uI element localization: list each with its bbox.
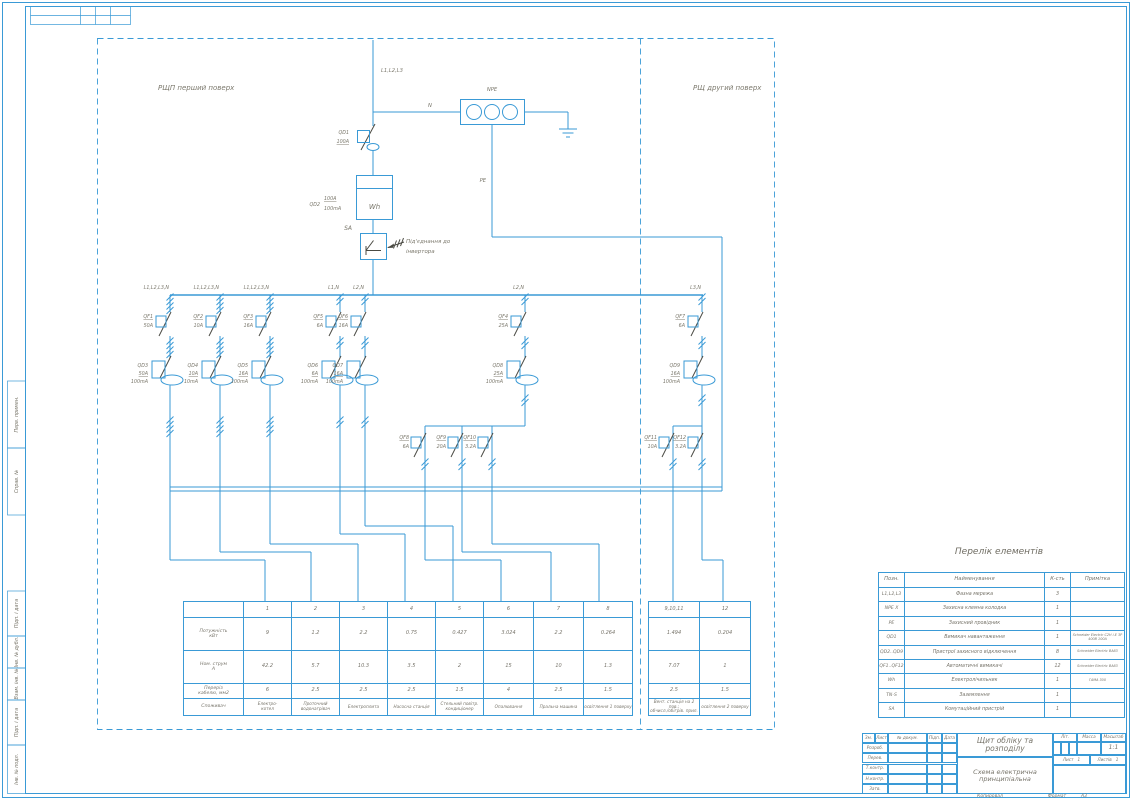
breaker-rating: 3.2A <box>465 444 476 450</box>
element-pos: L1,L2,L3 <box>879 588 905 602</box>
element-name: Електролічильник <box>905 674 1045 688</box>
rcd-name: QD8 <box>492 363 503 369</box>
breaker-name: QF7 <box>675 314 685 320</box>
document-title: Щит обліку та розподілу <box>957 733 1053 757</box>
margin-stamp-label: Справ. № <box>14 470 20 493</box>
load-row-label: Потужність кВт <box>184 618 244 651</box>
load-num: 2 <box>292 602 340 618</box>
load-power: 9 <box>244 618 292 651</box>
element-name: Заземлення <box>905 688 1045 702</box>
rcd-name: QD6 <box>307 363 318 369</box>
element-qty: 1 <box>1045 674 1071 688</box>
rcd-leakage: 100mA <box>486 379 503 385</box>
sign-cell <box>927 764 942 774</box>
margin-stamp-label: Взам. інв. № <box>14 669 20 700</box>
sign-header: № докум. <box>888 733 927 743</box>
rcd-rating: 25A <box>494 371 503 377</box>
rcd-rating: 6A <box>312 371 318 377</box>
sign-header: Дата <box>942 733 957 743</box>
format-label: Формат <box>1040 794 1074 799</box>
load-consumer: Проточний водонагрівач <box>292 699 340 716</box>
sign-row-label: Перев. <box>862 753 888 763</box>
load-num: 3 <box>340 602 388 618</box>
load-num: 4 <box>388 602 436 618</box>
load-row-label: Ном. струм А <box>184 651 244 684</box>
title-block: Щит обліку та розподілу Схема електрична… <box>862 733 1126 794</box>
load-num: 1 <box>244 602 292 618</box>
branch-feed-label: L1,L2,L3,N <box>194 285 220 291</box>
breaker-rating: 16A <box>339 323 348 329</box>
element-note: Schneider Electric BA63 <box>1071 645 1125 659</box>
first-floor-panel-label: РЩП перший поверх <box>158 84 235 92</box>
terminal-icon <box>503 105 518 120</box>
rcd-rating: 16A <box>671 371 680 377</box>
breaker-rating: 3.2A <box>675 444 686 450</box>
load-row-label: Переріз кабелю, мм2 <box>184 684 244 699</box>
sign-header: Зм. <box>862 733 875 743</box>
element-name: Комутаційний пристрій <box>905 703 1045 717</box>
element-qty: 12 <box>1045 659 1071 673</box>
mass-header: Масса <box>1077 733 1101 742</box>
load-num: 9,10,11 <box>649 602 700 618</box>
load-current: 15 <box>484 651 534 684</box>
npe-label: NPE <box>487 87 498 93</box>
load-num: 5 <box>436 602 484 618</box>
sign-cell <box>942 774 957 784</box>
rcd-body <box>252 361 265 378</box>
load-cable: 4 <box>484 684 534 699</box>
breaker-name: QF11 <box>644 435 657 441</box>
element-pos: Wh <box>879 674 905 688</box>
load-current: 42.2 <box>244 651 292 684</box>
load-current: 3.5 <box>388 651 436 684</box>
terminal-icon <box>485 105 500 120</box>
lit-cell <box>1053 742 1061 755</box>
meter-device-label: QD2 <box>309 202 320 208</box>
breaker-rating: 20A <box>437 444 446 450</box>
rcd-rating: 16A <box>239 371 248 377</box>
rcd-toroid <box>693 375 715 385</box>
branch-feed-label: L1,L2,L3,N <box>244 285 270 291</box>
load-consumer: освітлення 2 поверху <box>700 699 751 716</box>
rcd-body <box>347 361 360 378</box>
element-note <box>1071 602 1125 616</box>
sign-cell <box>927 753 942 763</box>
rcd-body <box>507 361 520 378</box>
load-current: 5.7 <box>292 651 340 684</box>
meter-symbol: Wh <box>369 203 380 211</box>
element-pos: QD2..QD9 <box>879 645 905 659</box>
load-num: 12 <box>700 602 751 618</box>
element-note <box>1071 616 1125 630</box>
pe-label: PE <box>480 178 487 184</box>
incoming-feeder: L1,L2,L3 N NPE PE <box>309 40 722 491</box>
element-name: Пристрої захисного відключення <box>905 645 1045 659</box>
rcd-toroid <box>161 375 183 385</box>
sa-switch-glyph <box>366 241 381 256</box>
elements-header: К-сть <box>1045 573 1071 588</box>
element-name: Захисний провідник <box>905 616 1045 630</box>
rcd-leakage: 100mA <box>663 379 680 385</box>
element-qty: 1 <box>1045 631 1071 645</box>
energy-meter <box>357 176 393 220</box>
element-note <box>1071 688 1125 702</box>
branch-feed-label: L2,N <box>513 285 524 291</box>
element-qty: 1 <box>1045 703 1071 717</box>
circuit-branch: L1,NQF56AQD66A100mA <box>301 285 405 601</box>
mass-cell <box>1077 742 1101 755</box>
rcd-toroid <box>356 375 378 385</box>
lit-header: Літ. <box>1053 733 1077 742</box>
sign-row-label: Т.контр. <box>862 764 888 774</box>
element-qty: 1 <box>1045 688 1071 702</box>
circuit-branch: L1,L2,L3,NQF150AQD350A100mA <box>131 285 265 601</box>
element-pos: PE <box>879 616 905 630</box>
circuit-branch: L2,NQF616AQD716A100mA <box>326 285 453 601</box>
rcd-rating: 50A <box>139 371 148 377</box>
load-cable: 1.5 <box>700 684 751 699</box>
load-power: 0.427 <box>436 618 484 651</box>
load-row-label <box>184 602 244 618</box>
neutral-label: N <box>428 103 432 109</box>
load-num: 6 <box>484 602 534 618</box>
load-power: 0.75 <box>388 618 436 651</box>
breaker-name: QF12 <box>673 435 686 441</box>
sheets-cell: Листів 1 <box>1090 755 1126 765</box>
margin-stamp-label: Інв. № подл. <box>14 754 20 785</box>
branch-feed-label: L3,N <box>690 285 701 291</box>
rcd-leakage: 100mA <box>326 379 343 385</box>
switch-release <box>367 144 379 151</box>
breaker-name: QF1 <box>143 314 153 320</box>
load-row-label: Споживач <box>184 699 244 716</box>
sign-cell <box>888 753 927 763</box>
copied-label: Копировал <box>955 794 1025 799</box>
load-consumer: Вент. станція на 2 пов.; обчисл./обігрів… <box>649 699 700 716</box>
load-consumer: Опалювання <box>484 699 534 716</box>
load-cable: 6 <box>244 684 292 699</box>
sheet-cell: Лист 1 <box>1053 755 1090 765</box>
elements-table-title: Перелік елементів <box>878 547 1120 557</box>
switch-contact <box>358 131 370 143</box>
sheet-label: Лист <box>1063 758 1074 762</box>
qd1-label: QD1 <box>338 130 349 136</box>
element-note: Schneider Electric C2H i-E 3P 400B 100A <box>1071 631 1125 645</box>
element-pos: SA <box>879 703 905 717</box>
breaker-rating: 10A <box>194 323 203 329</box>
inverter-note: інвертора <box>406 249 435 255</box>
sign-cell <box>888 764 927 774</box>
rcd-name: QD4 <box>187 363 198 369</box>
rcd-toroid <box>261 375 283 385</box>
load-cable: 2.5 <box>649 684 700 699</box>
branch-feed-label: L2,N <box>353 285 364 291</box>
load-power: 2.2 <box>534 618 584 651</box>
rcd-name: QD9 <box>669 363 680 369</box>
margin-stamp-label: Перв. примен. <box>14 396 20 432</box>
rcd-body <box>684 361 697 378</box>
sign-cell <box>888 743 927 753</box>
rcd-leakage: 100mA <box>231 379 248 385</box>
load-cable: 2.5 <box>292 684 340 699</box>
load-current: 10.3 <box>340 651 388 684</box>
load-num: 8 <box>584 602 633 618</box>
lit-cell <box>1061 742 1069 755</box>
breaker-rating: 16A <box>244 323 253 329</box>
sign-cell <box>927 743 942 753</box>
sign-cell <box>927 774 942 784</box>
rcd-body <box>202 361 215 378</box>
element-qty: 1 <box>1045 616 1071 630</box>
branch-feed-label: L1,N <box>328 285 339 291</box>
sheet-value: 1 <box>1077 758 1080 762</box>
circuit-branch: L3,NQF76AQD916A100mAQF1110AQF123.2A <box>644 285 723 601</box>
element-note: Schneider Electric BA63 <box>1071 659 1125 673</box>
load-power: 0.264 <box>584 618 633 651</box>
sign-cell <box>942 753 957 763</box>
load-num: 7 <box>534 602 584 618</box>
load-consumer: Електроплита <box>340 699 388 716</box>
rcd-toroid <box>211 375 233 385</box>
rcd-rating: 16A <box>334 371 343 377</box>
load-power: 2.2 <box>340 618 388 651</box>
element-qty: 8 <box>1045 645 1071 659</box>
phase-label: L1,L2,L3 <box>381 68 403 74</box>
element-note <box>1071 588 1125 602</box>
load-power: 1.494 <box>649 618 700 651</box>
sign-header: Лист <box>875 733 888 743</box>
meter-leakage: 100mA <box>324 206 341 212</box>
rcd-name: QD5 <box>237 363 248 369</box>
scale-value: 1:1 <box>1101 742 1126 755</box>
second-floor-panel-label: РЩ другий поверх <box>693 84 762 92</box>
margin-stamp-label: Підп. і дата <box>14 599 20 628</box>
switch-blade <box>361 124 375 150</box>
circuit-branch: L1,L2,L3,NQF316AQD516A100mA <box>231 285 358 601</box>
load-current: 10 <box>534 651 584 684</box>
load-power: 1.2 <box>292 618 340 651</box>
elements-header: Позн. <box>879 573 905 588</box>
load-consumer: Електро- котел <box>244 699 292 716</box>
meter-rating: 100A <box>324 196 336 202</box>
sign-header: Підп. <box>927 733 942 743</box>
circuit-branch: L2,NQF425AQD825A100mAQF86AQF920AQF103.2A <box>399 285 599 601</box>
breaker-name: QF8 <box>399 435 409 441</box>
terminal-icon <box>467 105 482 120</box>
rcd-body <box>152 361 165 378</box>
lit-cell <box>1069 742 1077 755</box>
inverter-note: Під'єднання до <box>406 239 451 245</box>
element-name: Вимикач навантаження <box>905 631 1045 645</box>
format-value: А3 <box>1074 794 1094 799</box>
breaker-rating: 25A <box>499 323 508 329</box>
breaker-rating: 50A <box>144 323 153 329</box>
ground-icon <box>559 129 577 137</box>
margin-stamp-label: Підп. і дата <box>14 708 20 737</box>
qd1-rating: 100A <box>337 139 349 145</box>
element-qty: 3 <box>1045 588 1071 602</box>
rcd-leakage: 100mA <box>131 379 148 385</box>
breaker-name: QF6 <box>338 314 348 320</box>
breaker-name: QF4 <box>498 314 508 320</box>
npe-terminal-block <box>461 100 525 125</box>
elements-header: Примітка <box>1071 573 1125 588</box>
sign-row-label: Розроб. <box>862 743 888 753</box>
element-pos: TN-S <box>879 688 905 702</box>
document-subtitle: Схема електрична принципіальна <box>957 757 1053 794</box>
load-cable: 2.5 <box>534 684 584 699</box>
sign-cell <box>888 784 927 794</box>
rcd-leakage: 10mA <box>184 379 198 385</box>
breaker-name: QF9 <box>436 435 446 441</box>
scale-header: Масштаб <box>1101 733 1126 742</box>
breaker-rating: 6A <box>317 323 323 329</box>
element-pos: QD1 <box>879 631 905 645</box>
sign-cell <box>927 784 942 794</box>
breaker-rating: 6A <box>403 444 409 450</box>
sa-label: SA <box>344 225 352 232</box>
inverter-arrow-marks <box>394 238 404 248</box>
sign-cell <box>942 743 957 753</box>
breaker-name: QF10 <box>463 435 476 441</box>
load-current: 2 <box>436 651 484 684</box>
rcd-name: QD3 <box>137 363 148 369</box>
element-name: Автоматичні вимикачі <box>905 659 1045 673</box>
load-consumer: Стельний повітр. кондиціонер <box>436 699 484 716</box>
load-consumer: Насосна станція <box>388 699 436 716</box>
sign-cell <box>942 784 957 794</box>
rcd-toroid <box>516 375 538 385</box>
load-current: 1 <box>700 651 751 684</box>
breaker-name: QF2 <box>193 314 203 320</box>
load-current: 7.07 <box>649 651 700 684</box>
breaker-name: QF5 <box>313 314 323 320</box>
element-pos: QF1..QF12 <box>879 659 905 673</box>
margin-stamp-label: Інв. № дубл. <box>14 637 20 668</box>
element-name: Захисна клемна колодка <box>905 602 1045 616</box>
breaker-rating: 10A <box>648 444 657 450</box>
drawing-sheet: РЩП перший поверх РЩ другий поверх L1,L2… <box>0 0 1132 800</box>
circuit-branch: L1,L2,L3,NQF210AQD410A10mA <box>184 285 311 601</box>
sign-cell <box>888 774 927 784</box>
breaker-name: QF3 <box>243 314 253 320</box>
sign-row-label: Затв. <box>862 784 888 794</box>
element-note: ГАМА 300 <box>1071 674 1125 688</box>
load-cable: 2.5 <box>340 684 388 699</box>
load-cable: 1.5 <box>436 684 484 699</box>
rcd-name: QD7 <box>332 363 343 369</box>
load-consumer: освітлення 1 поверху <box>584 699 633 716</box>
sheets-label: Листів <box>1098 758 1112 762</box>
element-qty: 1 <box>1045 602 1071 616</box>
breaker-rating: 6A <box>679 323 685 329</box>
sheets-value: 1 <box>1116 758 1119 762</box>
sign-cell <box>942 764 957 774</box>
rcd-leakage: 100mA <box>301 379 318 385</box>
rcd-rating: 10A <box>189 371 198 377</box>
element-note <box>1071 703 1125 717</box>
load-power: 3.024 <box>484 618 534 651</box>
load-current: 1.3 <box>584 651 633 684</box>
organization-cell <box>1053 765 1126 794</box>
corner-stamp <box>31 7 131 25</box>
load-power: 0.204 <box>700 618 751 651</box>
load-cable: 1.5 <box>584 684 633 699</box>
sign-row-label: Н.контр. <box>862 774 888 784</box>
elements-header: Найменування <box>905 573 1045 588</box>
load-cable: 2.5 <box>388 684 436 699</box>
sa-switch <box>361 234 387 260</box>
element-name: Фазна мережа <box>905 588 1045 602</box>
element-pos: NPE X <box>879 602 905 616</box>
load-consumer: Пральна машина <box>534 699 584 716</box>
branch-feed-label: L1,L2,L3,N <box>144 285 170 291</box>
